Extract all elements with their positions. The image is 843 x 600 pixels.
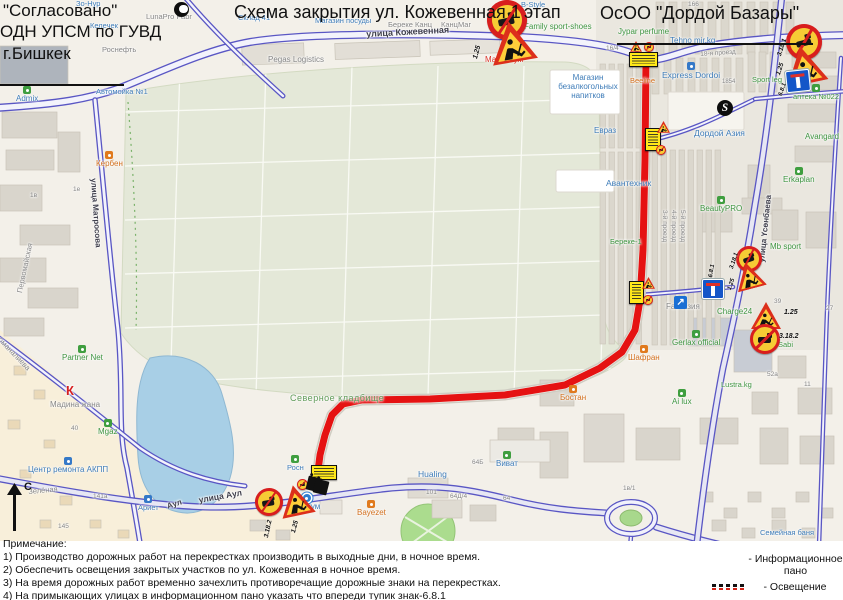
legend-lighting-label: - Освещение — [750, 581, 840, 593]
map-label-text: Авантехник — [606, 178, 651, 188]
poi-icon — [678, 389, 686, 397]
map-label-text: Виват — [496, 459, 518, 468]
map-label-text: Mgaz — [98, 427, 118, 436]
map-label: Авантехник — [606, 179, 651, 189]
map-label-text: Магазин безалкогольных напитков — [558, 73, 618, 100]
map-label-text: Sport leg — [752, 75, 782, 84]
map-label: 141а — [93, 493, 107, 500]
roadworks-sign — [731, 259, 767, 293]
map-label: Семейная баня — [760, 529, 814, 537]
map-label: Кербен — [96, 151, 123, 169]
sign-glyph: ↗ — [676, 297, 684, 308]
sign-number-label: 6.8.1 — [708, 264, 716, 278]
s-logo-icon: S — [717, 100, 733, 116]
map-label: 145 — [58, 523, 69, 530]
poi-icon — [291, 455, 299, 463]
map-label: Шафран — [628, 345, 660, 363]
map-label-text: Мадина жана — [50, 400, 100, 409]
map-label-text: оманалиева — [0, 335, 32, 372]
map-label: Ариет — [138, 495, 159, 512]
map-label: Pegas Logistics — [268, 56, 324, 65]
note-line: 1) Производство дорожных работ на перекр… — [3, 551, 480, 563]
map-label: К — [66, 384, 74, 399]
poi-icon — [367, 500, 375, 508]
map-label: Beeline — [630, 77, 655, 85]
map-label: 1е — [73, 186, 80, 193]
map-label-text: Дордой Азия — [694, 128, 745, 138]
map-label: 1в — [30, 192, 37, 199]
map-label: Mb sport — [770, 243, 801, 252]
map-label: Sport leg — [752, 76, 782, 84]
map-label-text: Express Dordoi — [662, 70, 720, 80]
map-label-text: 64 — [503, 495, 510, 502]
map-label: Admix — [16, 86, 38, 104]
map-label: Jypar perfume — [618, 28, 669, 37]
map-label-text: 141а — [93, 493, 107, 500]
legend-info-panel-label: - Информационное пано — [748, 553, 843, 577]
map-label: Hualing — [418, 470, 447, 480]
map-label: Роснефть — [102, 46, 136, 54]
map-label-text: улица Кожевенная — [366, 25, 449, 39]
map-label-text: 27 — [826, 305, 833, 312]
map-label-text: 16/4 — [606, 45, 619, 52]
sign-number-label: 1.25 — [784, 309, 798, 316]
map-label-text: Автомойка №1 — [96, 87, 148, 96]
roadworks-sign — [276, 482, 316, 519]
map-label: Дордой Азия — [694, 129, 745, 139]
poi-icon — [64, 457, 72, 465]
map-label: Ai lux — [672, 389, 692, 407]
map-label: 1854 — [722, 79, 735, 86]
map-label: Северное кладбище — [290, 393, 384, 403]
map-label: Partner Net — [62, 345, 103, 363]
no-maneuver-sign — [656, 145, 666, 155]
map-label: 11 — [804, 381, 811, 388]
scheme-title: Схема закрытия ул. Кожевенная 1 — [234, 2, 521, 23]
map-label: Bayezet — [357, 500, 386, 518]
map-label: Charge24 — [717, 308, 752, 317]
map-label-text: Beeline — [630, 76, 655, 85]
map-label-text: 11 — [804, 381, 811, 388]
map-label-text: Lustra.kg — [721, 380, 752, 389]
no-maneuver-sign — [750, 324, 780, 354]
map-label-text: 101 — [426, 489, 437, 496]
map-label-text: 40 — [71, 425, 78, 432]
map-label-text: 64Д/4 — [450, 493, 467, 500]
map-label-text: Роснефть — [102, 45, 136, 54]
map-label: 64 — [503, 495, 510, 502]
map-label-text: Евраз — [594, 126, 616, 135]
note-line: 2) Обеспечить освещения закрытых участко… — [3, 564, 400, 576]
street-label: улица Аул — [198, 488, 243, 505]
sign-number-label: 3.18.2 — [779, 333, 798, 340]
map-label: Мадина жана — [50, 401, 100, 410]
map-label-text: Бостан — [560, 393, 586, 402]
map-label: Express Dordoi — [662, 62, 720, 81]
map-label-text: Ариет — [138, 503, 159, 512]
map-label: Первомайская — [16, 242, 35, 293]
map-label-text: аптека №022 — [793, 92, 839, 101]
map-label-text: 3-й проезд — [661, 210, 668, 242]
map-label-text: улица Аул — [198, 487, 243, 504]
map-label-text: Северное кладбище — [290, 393, 384, 403]
poi-icon — [717, 196, 725, 204]
map-label: Автомойка №1 — [96, 88, 148, 96]
approval-line3: г.Бишкек — [3, 44, 71, 64]
map-label: Росн — [287, 455, 304, 472]
sign-glyph: S — [722, 102, 728, 114]
compass-north-arrow: С — [6, 479, 36, 535]
approval-line2: ОДН УПСМ по ГУВД — [0, 22, 161, 42]
map-label-text: Partner Net — [62, 353, 103, 362]
map-label: Erkaplan — [783, 167, 815, 185]
map-label: 5-й проезд — [679, 210, 686, 242]
map-label: 52а — [767, 371, 778, 378]
map-label-text: 1в — [30, 192, 37, 199]
map-label: 64Б — [472, 459, 484, 466]
sign-number-label: 1.25 — [290, 520, 300, 534]
map-label-text: Центр ремонта АКПП — [28, 465, 108, 474]
poi-icon — [687, 62, 695, 70]
map-label-text: 18-я проезд — [700, 49, 736, 58]
notes-heading: Примечание: — [3, 538, 67, 550]
map-label-text: 4-й проезд — [670, 210, 677, 242]
lunapro-logo-icon — [174, 2, 189, 17]
map-label: Mgaz — [98, 419, 118, 437]
map-label-text: BeautyPRO — [700, 204, 742, 213]
poi-icon — [795, 167, 803, 175]
sign-number-label: 1.25 — [472, 45, 482, 60]
worker-figure-icon — [313, 479, 330, 496]
roadworks-sign — [642, 277, 655, 289]
map-label-text: 5-й проезд — [679, 210, 686, 242]
no-maneuver-sign — [643, 295, 653, 305]
map-label-text: Pegas Logistics — [268, 55, 324, 64]
map-label: Sabi — [778, 341, 793, 349]
map-label: Виват — [496, 451, 518, 469]
map-label: Центр ремонта АКПП — [28, 457, 108, 475]
map-label: 4-й проезд — [670, 210, 677, 242]
map-label-text: 1в/1 — [623, 485, 636, 492]
map-label-text: 52а — [767, 371, 778, 378]
map-label: 64Д/4 — [450, 493, 467, 500]
map-label-text: Ai lux — [672, 397, 692, 406]
poi-icon — [104, 419, 112, 427]
street-label: улица Матросова — [88, 178, 102, 248]
street-label: улица Кожевенная — [366, 25, 449, 39]
map-label: 16/4 — [606, 45, 619, 52]
lighting-dash-icon — [712, 584, 746, 590]
info-panel — [629, 52, 658, 67]
map-label-text: Mb sport — [770, 242, 801, 251]
map-label: 18-я проезд — [700, 49, 736, 59]
note-line: 3) На время дорожных работ временно заче… — [3, 577, 501, 589]
poi-icon — [569, 385, 577, 393]
map-label-text: Bayezet — [357, 508, 386, 517]
map-label-text: Аул — [166, 497, 183, 510]
dead-end-sign — [702, 279, 724, 299]
map-label: 1в/1 — [623, 485, 636, 492]
org-title: ОсОО "Дордой Базары" — [600, 3, 799, 24]
map-label-text: Admix — [16, 94, 38, 103]
map-label-text: 1е — [73, 186, 80, 193]
map-label: 3-й проезд — [661, 210, 668, 242]
map-label: 40 — [71, 425, 78, 432]
scheme-title-suffix: этап — [524, 2, 561, 23]
map-label-text: Charge24 — [717, 307, 752, 316]
map-label: оманалиева — [0, 336, 32, 372]
compass-label: С — [24, 481, 32, 493]
map-label-text: Sabi — [778, 340, 793, 349]
approval-line1: "Согласовано" — [3, 1, 117, 21]
map-label-text: 145 — [58, 523, 69, 530]
map-label: Avangard — [805, 133, 839, 142]
roadworks-sign — [657, 121, 670, 133]
map-label: Бостан — [560, 385, 586, 403]
map-label-text: Семейная баня — [760, 528, 814, 537]
map-label-text: Береке-1 — [610, 237, 642, 246]
dead-end-sign — [785, 69, 811, 94]
map-label: Tehno mir.kg — [670, 37, 715, 46]
poi-icon — [503, 451, 511, 459]
note-line: 4) На примыкающих улицах в информационно… — [3, 590, 446, 600]
road-closure-scheme-map: Зо-НурLunaPro FabrСклад 41КелечекРоснефт… — [0, 0, 843, 600]
roadworks-sign — [486, 17, 538, 66]
map-label-text: Росн — [287, 463, 304, 472]
sign-number-label: 3.18.2 — [263, 519, 274, 538]
signature-line — [0, 84, 124, 86]
map-label-text: Jypar perfume — [618, 27, 669, 36]
map-label: Gerlax official — [672, 330, 720, 348]
map-label: Lustra.kg — [721, 381, 752, 389]
poi-icon — [105, 151, 113, 159]
map-label-text: Первомайская — [15, 242, 34, 294]
map-label-text: улица Матросова — [89, 178, 103, 248]
map-label: Береке-1 — [610, 238, 642, 246]
street-label: Аул — [166, 498, 183, 511]
poi-icon — [812, 84, 820, 92]
direction-sign: ↗ — [674, 296, 687, 309]
org-underline — [617, 43, 813, 45]
map-label-text: Family sport-shoes — [524, 22, 592, 31]
poi-icon — [78, 345, 86, 353]
map-label-text: 64Б — [472, 459, 484, 466]
map-label: 27 — [826, 305, 833, 312]
map-label-text: Gerlax official — [672, 338, 720, 347]
map-label-text: Hualing — [418, 469, 447, 479]
map-label-text: 1854 — [722, 79, 735, 85]
poi-icon — [23, 86, 31, 94]
map-label-text: Erkaplan — [783, 175, 815, 184]
poi-icon — [640, 345, 648, 353]
map-label: BeautyPRO — [700, 196, 742, 214]
map-label: Магазин безалкогольных напитков — [550, 74, 626, 101]
map-label: Евраз — [594, 127, 616, 136]
map-label: Family sport-shoes — [524, 23, 592, 32]
map-label-text: К — [66, 383, 74, 398]
poi-icon — [144, 495, 152, 503]
poi-icon — [692, 330, 700, 338]
map-label-text: Кербен — [96, 159, 123, 168]
map-label-text: Avangard — [805, 132, 839, 141]
map-label: 101 — [426, 489, 437, 496]
map-label-text: Шафран — [628, 353, 660, 362]
